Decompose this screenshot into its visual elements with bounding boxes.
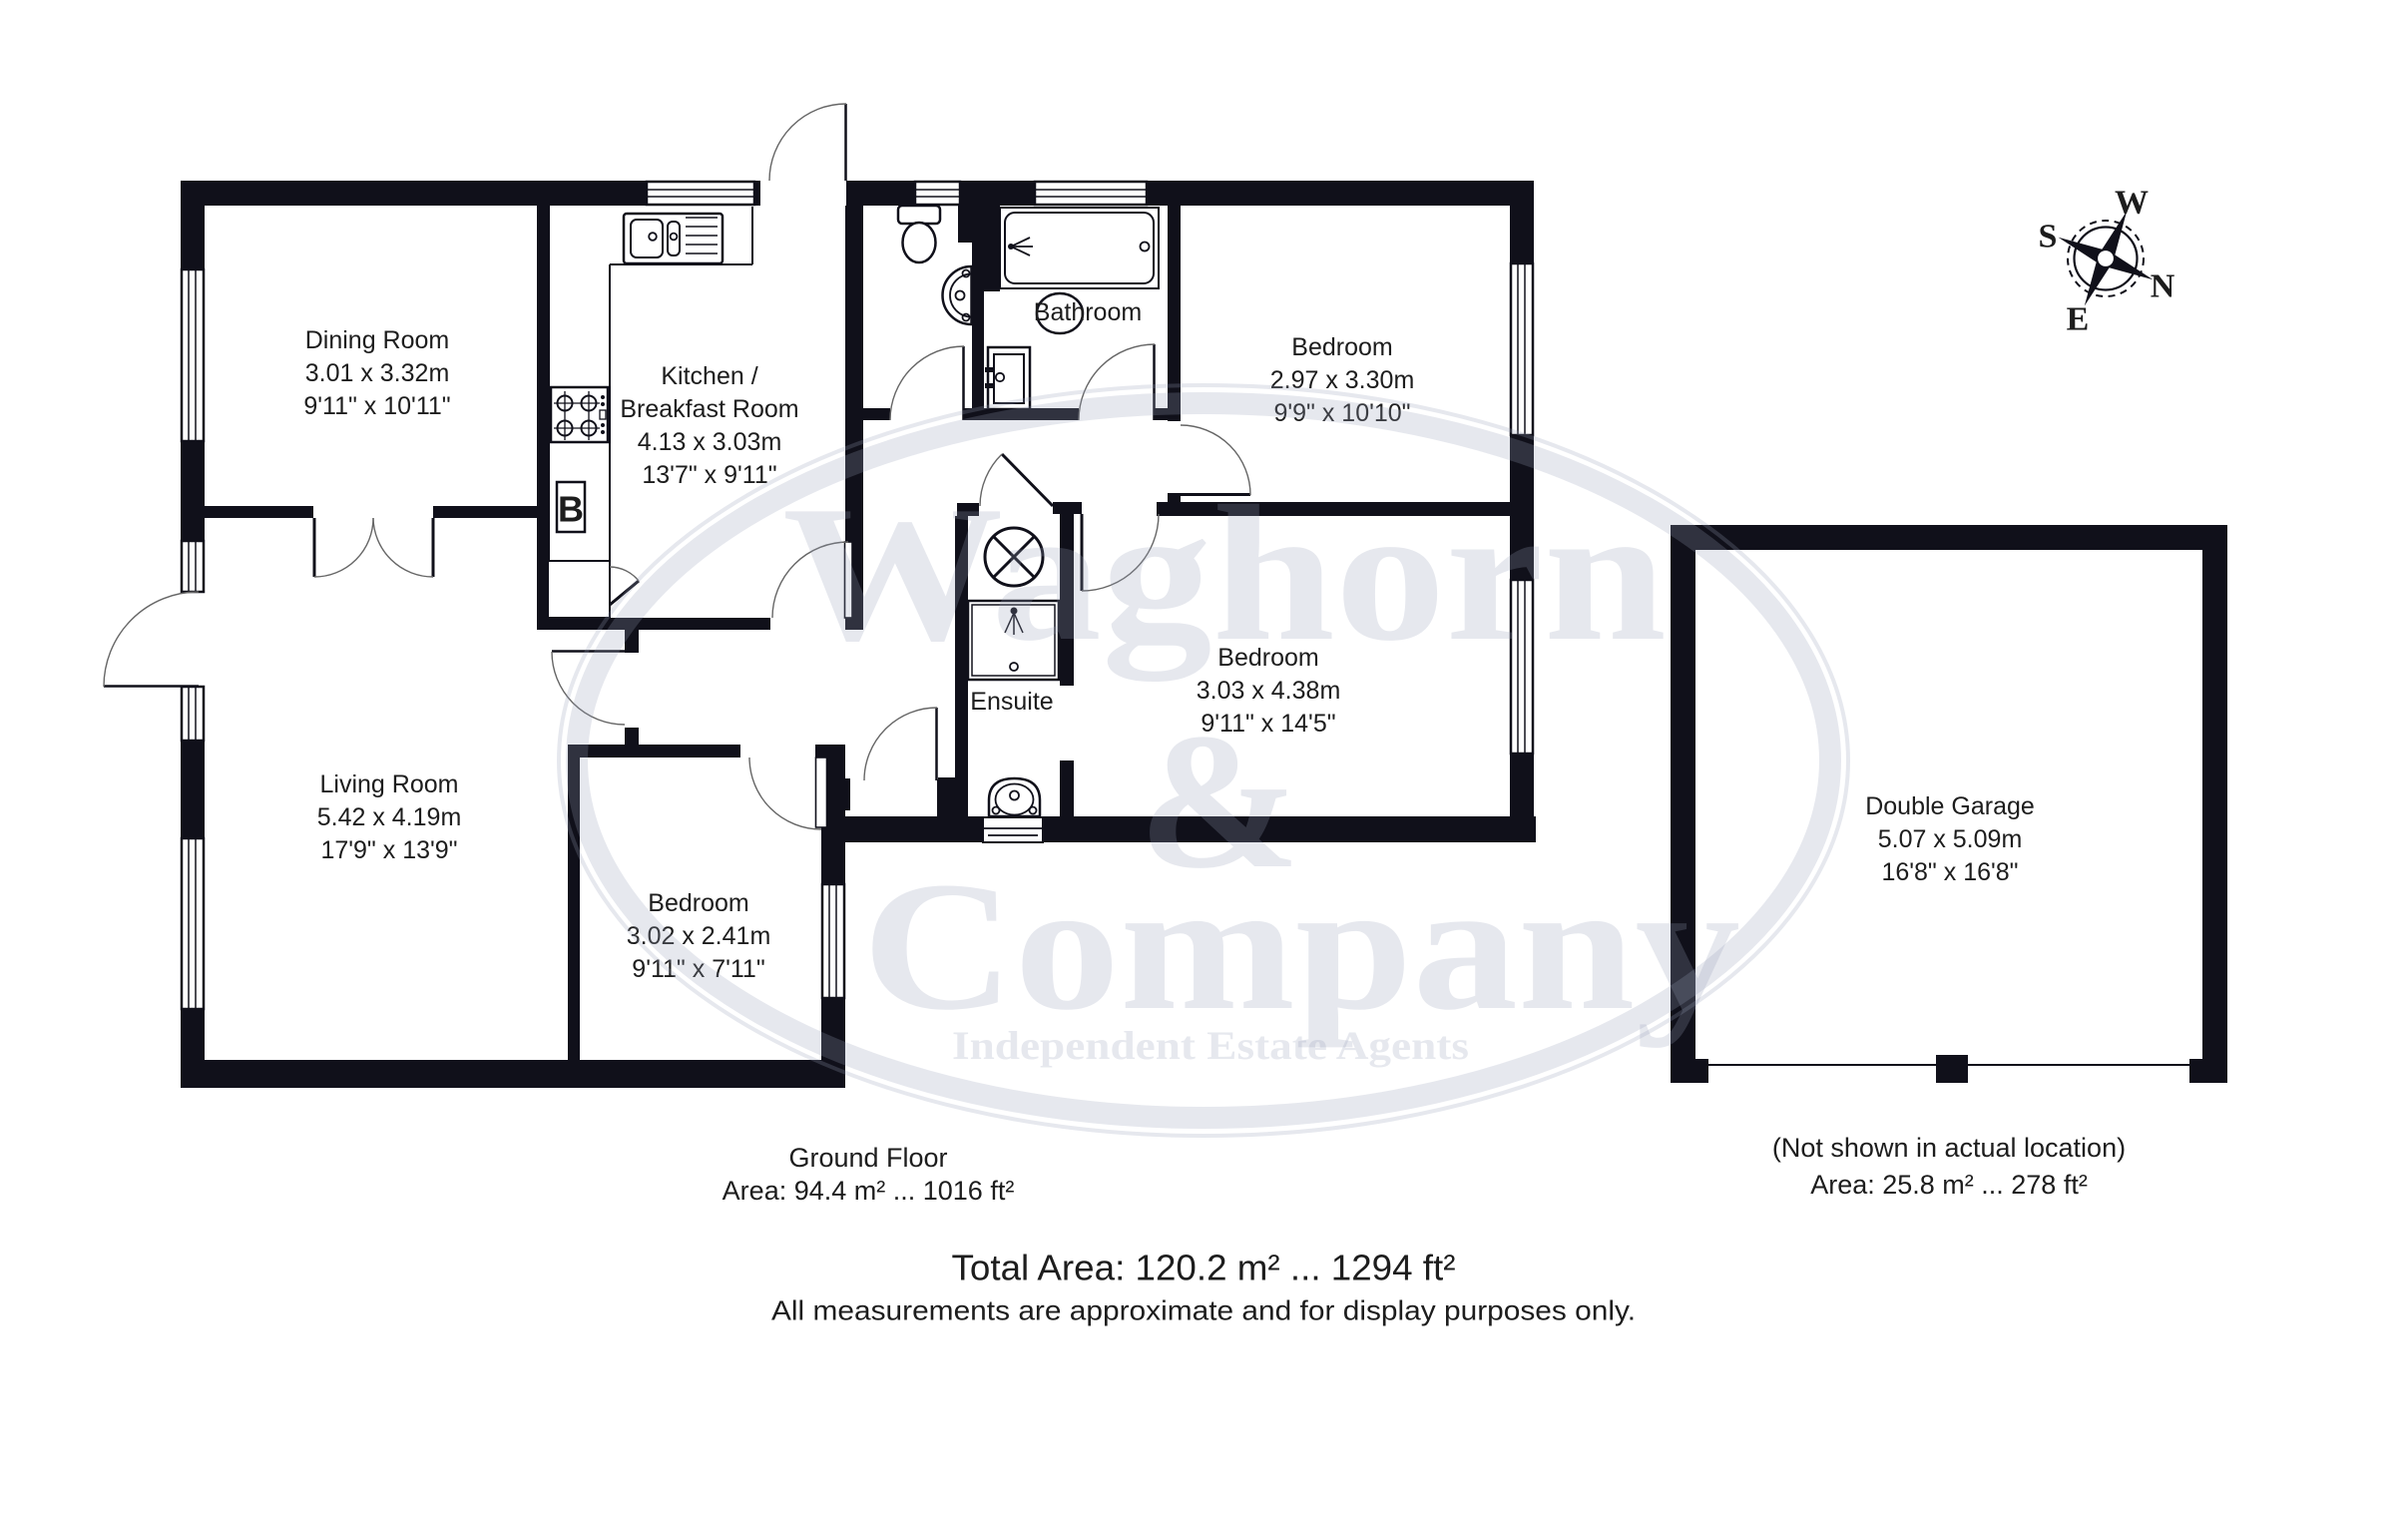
svg-text:3.01 x 3.32m: 3.01 x 3.32m bbox=[305, 359, 450, 387]
svg-text:E: E bbox=[2067, 301, 2090, 338]
svg-text:Bathroom: Bathroom bbox=[1034, 298, 1142, 326]
svg-text:16'8" x 16'8": 16'8" x 16'8" bbox=[1881, 858, 2018, 886]
svg-text:Dining Room: Dining Room bbox=[305, 326, 450, 354]
svg-text:Area: 25.8 m² ... 278 ft²: Area: 25.8 m² ... 278 ft² bbox=[1810, 1170, 2088, 1200]
svg-text:4.13 x 3.03m: 4.13 x 3.03m bbox=[638, 428, 782, 456]
svg-text:B: B bbox=[558, 489, 584, 530]
svg-text:Ground Floor: Ground Floor bbox=[788, 1143, 947, 1173]
svg-text:5.07 x 5.09m: 5.07 x 5.09m bbox=[1878, 825, 2023, 853]
svg-text:Breakfast Room: Breakfast Room bbox=[620, 395, 798, 423]
svg-text:Waghorn: Waghorn bbox=[782, 466, 1667, 682]
svg-text:N: N bbox=[2151, 268, 2175, 305]
svg-text:All measurements are approxima: All measurements are approximate and for… bbox=[771, 1295, 1636, 1326]
svg-text:Area: 94.4 m² ... 1016 ft²: Area: 94.4 m² ... 1016 ft² bbox=[722, 1176, 1015, 1206]
svg-text:13'7" x 9'11": 13'7" x 9'11" bbox=[642, 461, 776, 489]
svg-text:Company: Company bbox=[862, 844, 1740, 1049]
svg-text:(Not shown in actual location): (Not shown in actual location) bbox=[1772, 1133, 2126, 1163]
svg-text:Living Room: Living Room bbox=[320, 770, 459, 798]
svg-text:Bedroom: Bedroom bbox=[1291, 333, 1392, 361]
svg-text:Bedroom: Bedroom bbox=[648, 889, 748, 917]
svg-text:9'11" x 10'11": 9'11" x 10'11" bbox=[303, 392, 450, 420]
svg-text:Kitchen /: Kitchen / bbox=[661, 362, 757, 390]
svg-text:Double Garage: Double Garage bbox=[1865, 792, 2035, 820]
svg-text:W: W bbox=[2115, 185, 2149, 222]
svg-text:5.42 x 4.19m: 5.42 x 4.19m bbox=[317, 803, 462, 831]
svg-text:Ensuite: Ensuite bbox=[970, 688, 1053, 716]
svg-text:17'9" x 13'9": 17'9" x 13'9" bbox=[320, 836, 457, 864]
svg-text:S: S bbox=[2039, 219, 2058, 255]
svg-text:Total Area: 120.2 m² ... 1294: Total Area: 120.2 m² ... 1294 ft² bbox=[952, 1248, 1456, 1288]
svg-text:Independent Estate Agents: Independent Estate Agents bbox=[952, 1023, 1469, 1068]
